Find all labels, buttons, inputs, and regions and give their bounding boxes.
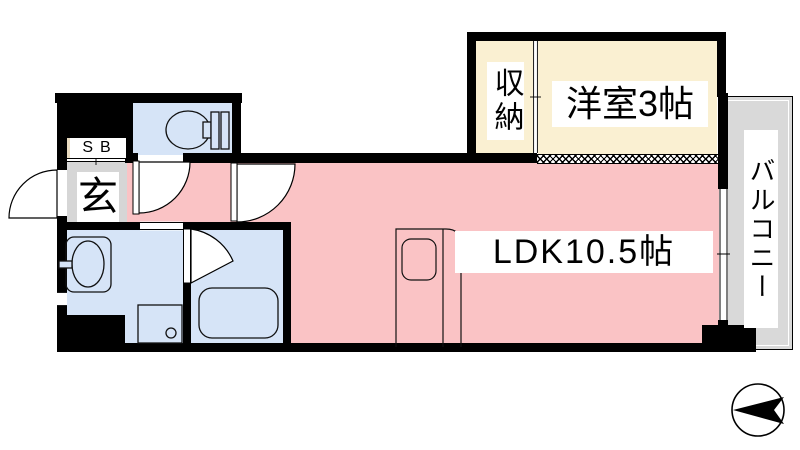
washbasin-icon — [59, 237, 111, 292]
washroom-doorway — [140, 222, 183, 231]
floor-plan: SB 玄 収納 洋室3帖 LDK10.5帖 バルコニー — [0, 0, 800, 450]
washroom-window-icon — [57, 292, 67, 306]
bathroom-door-swing — [184, 229, 234, 283]
bathtub-icon — [199, 288, 278, 338]
balcony-label: バルコニー — [744, 130, 778, 328]
hall-door-swing — [133, 161, 190, 214]
entrance-door-swing — [9, 170, 57, 218]
symbols-overlay — [0, 0, 800, 450]
closet-sliding-door-icon — [530, 41, 541, 153]
ldk-door-swing — [231, 163, 295, 222]
closet-label: 収納 — [487, 62, 524, 140]
kitchen-sink-counter-icon — [396, 229, 461, 347]
north-arrow-icon — [732, 384, 784, 436]
ldk-label: LDK10.5帖 — [455, 231, 713, 273]
entrance-label: 玄 — [77, 172, 119, 222]
washing-machine-pan-icon — [138, 305, 182, 343]
western-room-label: 洋室3帖 — [552, 81, 708, 127]
shoe-box-label: SB — [70, 138, 126, 158]
balcony-sliding-window-icon — [717, 189, 730, 320]
toilet-icon — [166, 111, 229, 149]
